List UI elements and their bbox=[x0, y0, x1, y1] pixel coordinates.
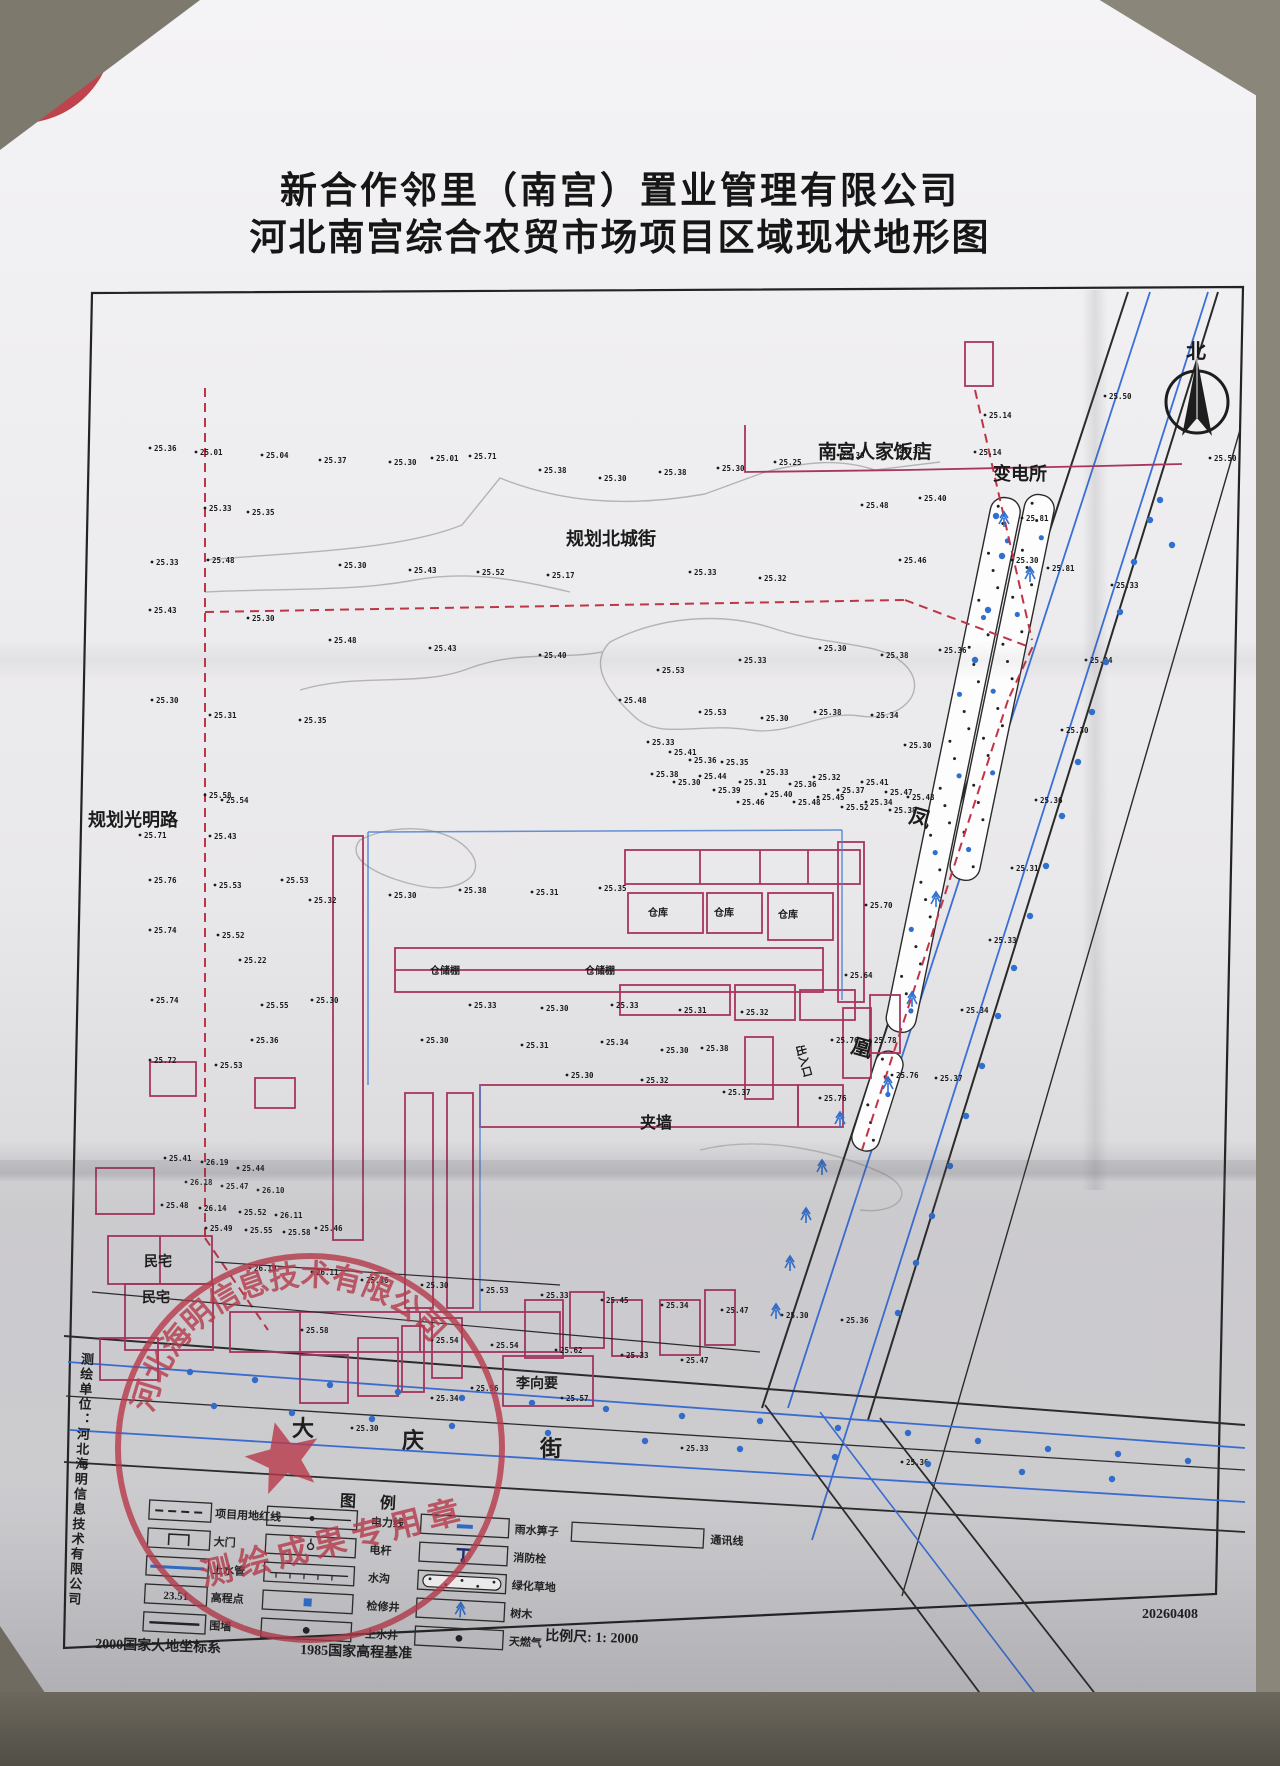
spot-elevation-dot bbox=[247, 511, 250, 514]
spot-elevation-value: 25.53 bbox=[704, 708, 727, 717]
spot-elevation-dot bbox=[841, 1319, 844, 1322]
utility-dot bbox=[1027, 913, 1033, 919]
greenbelt-dot bbox=[948, 740, 951, 743]
greenbelt-dot bbox=[972, 663, 975, 666]
spot-elevation-dot bbox=[837, 789, 840, 792]
utility-dot bbox=[1089, 709, 1095, 715]
spot-elevation-value: 26.11 bbox=[280, 1211, 303, 1220]
spot-elevation-value: 25.33 bbox=[686, 1444, 709, 1453]
legend-label: 消防栓 bbox=[513, 1550, 547, 1566]
spot-elevation-value: 25.33 bbox=[626, 1351, 649, 1360]
greenbelt-dot bbox=[997, 505, 1000, 508]
spot-elevation-value: 25.70 bbox=[870, 901, 893, 910]
spot-elevation-value: 25.50 bbox=[1109, 392, 1132, 401]
spot-elevation-value: 26.19 bbox=[206, 1158, 229, 1167]
spot-elevation-value: 25.76 bbox=[154, 876, 177, 885]
spot-elevation-dot bbox=[311, 999, 314, 1002]
spot-elevation-dot bbox=[865, 904, 868, 907]
spot-elevation-value: 25.30 bbox=[766, 714, 789, 723]
spot-elevation-value: 25.53 bbox=[220, 1061, 243, 1070]
greenbelt-dot bbox=[919, 881, 922, 884]
utility-dot bbox=[975, 1438, 981, 1444]
spot-elevation-value: 26.10 bbox=[262, 1186, 285, 1195]
spot-elevation-dot bbox=[329, 639, 332, 642]
spot-elevation-dot bbox=[601, 1299, 604, 1302]
spot-elevation-value: 25.71 bbox=[144, 831, 167, 840]
spot-elevation-dot bbox=[865, 801, 868, 804]
spot-elevation-value: 25.43 bbox=[214, 832, 237, 841]
spot-elevation-dot bbox=[161, 1204, 164, 1207]
north-label: 北 bbox=[1186, 340, 1206, 363]
spot-elevation-value: 25.30 bbox=[824, 644, 847, 653]
utility-dot bbox=[913, 1260, 919, 1266]
spot-elevation-dot bbox=[247, 617, 250, 620]
greenbelt-dot bbox=[905, 992, 908, 995]
spot-elevation-dot bbox=[459, 889, 462, 892]
spot-elevation-value: 25.43 bbox=[912, 793, 935, 802]
greenbelt-dot bbox=[866, 1103, 869, 1106]
spot-elevation-value: 25.52 bbox=[482, 568, 505, 577]
spot-elevation-dot bbox=[429, 647, 432, 650]
spot-elevation-dot bbox=[689, 759, 692, 762]
spot-elevation-dot bbox=[139, 834, 142, 837]
greenbelt-dot bbox=[1006, 660, 1009, 663]
spot-elevation-dot bbox=[1011, 559, 1014, 562]
spot-elevation-value: 25.57 bbox=[566, 1394, 589, 1403]
spot-elevation-dot bbox=[469, 1004, 472, 1007]
spot-elevation-value: 25.40 bbox=[924, 494, 947, 503]
legend-label: 通讯线 bbox=[710, 1532, 744, 1548]
spot-elevation-value: 25.30 bbox=[1016, 556, 1039, 565]
spot-elevation-value: 25.52 bbox=[222, 931, 245, 940]
spot-elevation-dot bbox=[299, 719, 302, 722]
spot-elevation-dot bbox=[351, 1427, 354, 1430]
spot-elevation-dot bbox=[275, 1214, 278, 1217]
spot-elevation-value: 25.34 bbox=[1090, 656, 1113, 665]
spot-elevation-value: 25.33 bbox=[209, 504, 232, 513]
legend-label: 树木 bbox=[510, 1606, 534, 1621]
spot-elevation-value: 25.47 bbox=[686, 1356, 709, 1365]
spot-elevation-value: 25.34 bbox=[606, 1038, 629, 1047]
spot-elevation-dot bbox=[541, 1007, 544, 1010]
spot-elevation-dot bbox=[207, 559, 210, 562]
spot-elevation-value: 25.04 bbox=[266, 451, 289, 460]
spot-elevation-value: 25.37 bbox=[324, 456, 347, 465]
planned-guangming-road-label: 规划光明路 bbox=[88, 809, 179, 830]
spot-elevation-value: 25.31 bbox=[744, 778, 767, 787]
spot-elevation-value: 25.81 bbox=[1026, 514, 1049, 523]
spot-elevation-dot bbox=[204, 507, 207, 510]
utility-dot bbox=[1185, 1458, 1191, 1464]
spot-elevation-value: 25.30 bbox=[344, 561, 367, 570]
spot-elevation-value: 25.33 bbox=[616, 1001, 639, 1010]
spot-elevation-value: 25.30 bbox=[678, 778, 701, 787]
spot-elevation-dot bbox=[215, 1064, 218, 1067]
tree-icon bbox=[801, 1208, 811, 1223]
spot-elevation-value: 25.32 bbox=[764, 574, 787, 583]
greenbelt-tree-dot bbox=[966, 847, 971, 852]
spot-elevation-dot bbox=[939, 649, 942, 652]
spot-elevation-dot bbox=[195, 451, 198, 454]
spot-elevation-dot bbox=[881, 654, 884, 657]
spot-elevation-dot bbox=[481, 1289, 484, 1292]
spot-elevation-dot bbox=[739, 781, 742, 784]
spot-elevation-dot bbox=[566, 1074, 569, 1077]
datum-plane-label: 2000国家大地坐标系 bbox=[95, 1635, 222, 1656]
greenbelt-dot bbox=[996, 586, 999, 589]
greenbelt-tree-dot bbox=[981, 615, 986, 620]
tree-icon bbox=[817, 1160, 827, 1175]
spot-elevation-dot bbox=[151, 699, 154, 702]
scale-label: 比例尺: 1: 2000 bbox=[545, 1627, 639, 1647]
spot-elevation-value: 25.62 bbox=[560, 1346, 583, 1355]
utility-dot bbox=[737, 1446, 743, 1452]
spot-elevation-value: 25.48 bbox=[798, 798, 821, 807]
spot-elevation-dot bbox=[761, 771, 764, 774]
spot-elevation-dot bbox=[699, 775, 702, 778]
topographic-map-canvas: 25.3625.0125.0425.3725.3025.0125.7125.38… bbox=[0, 0, 1280, 1766]
spot-elevation-dot bbox=[201, 1161, 204, 1164]
utility-dot bbox=[1043, 863, 1049, 869]
spot-elevation-value: 25.55 bbox=[250, 1226, 273, 1235]
legend-label: 绿化草地 bbox=[511, 1578, 556, 1594]
height-datum-label: 1985国家高程基准 bbox=[300, 1641, 413, 1662]
spot-elevation-dot bbox=[339, 564, 342, 567]
spot-elevation-dot bbox=[841, 806, 844, 809]
greenbelt-tree-dot bbox=[908, 1008, 913, 1013]
utility-dot bbox=[972, 657, 978, 663]
spot-elevation-value: 25.47 bbox=[726, 1306, 749, 1315]
utility-dot bbox=[995, 1013, 1001, 1019]
spot-elevation-value: 25.30 bbox=[666, 1046, 689, 1055]
legend-label: 高程点 bbox=[210, 1590, 244, 1606]
greenbelt-tree-dot bbox=[991, 689, 996, 694]
spot-elevation-value: 25.14 bbox=[989, 411, 1012, 420]
spot-elevation-value: 25.34 bbox=[966, 1006, 989, 1015]
spot-elevation-value: 25.38 bbox=[544, 466, 567, 475]
spot-elevation-value: 25.38 bbox=[819, 708, 842, 717]
spot-elevation-value: 25.38 bbox=[886, 651, 909, 660]
greenbelt-dot bbox=[1011, 677, 1014, 680]
spot-elevation-dot bbox=[431, 1397, 434, 1400]
utility-dot bbox=[905, 1430, 911, 1436]
spot-elevation-value: 25.54 bbox=[496, 1341, 519, 1350]
spot-elevation-value: 25.81 bbox=[1052, 564, 1075, 573]
spot-elevation-dot bbox=[659, 471, 662, 474]
spot-elevation-dot bbox=[713, 789, 716, 792]
utility-dot bbox=[459, 1395, 465, 1401]
spot-elevation-value: 25.76 bbox=[824, 1094, 847, 1103]
utility-dot bbox=[929, 1213, 935, 1219]
spot-elevation-dot bbox=[793, 801, 796, 804]
utility-dot bbox=[1147, 517, 1153, 523]
spot-elevation-value: 25.33 bbox=[994, 936, 1017, 945]
spot-elevation-dot bbox=[217, 934, 220, 937]
spot-elevation-dot bbox=[899, 559, 902, 562]
spot-elevation-value: 25.52 bbox=[846, 803, 869, 812]
spot-elevation-dot bbox=[723, 1091, 726, 1094]
greenbelt-dot bbox=[929, 915, 932, 918]
spot-elevation-dot bbox=[151, 561, 154, 564]
spot-elevation-value: 25.53 bbox=[486, 1286, 509, 1295]
corner-stamp bbox=[0, 0, 108, 118]
spot-elevation-value: 25.01 bbox=[436, 454, 459, 463]
spot-elevation-dot bbox=[661, 1049, 664, 1052]
spot-elevation-value: 25.31 bbox=[214, 711, 237, 720]
spot-elevation-dot bbox=[164, 1157, 167, 1160]
greenbelt-dot bbox=[972, 865, 975, 868]
greenbelt-dot bbox=[992, 569, 995, 572]
daqing-street-char: 庆 bbox=[402, 1428, 424, 1453]
spot-elevation-dot bbox=[1011, 867, 1014, 870]
spot-elevation-dot bbox=[149, 447, 152, 450]
spot-elevation-dot bbox=[421, 1039, 424, 1042]
greenbelt-dot bbox=[939, 787, 942, 790]
greenbelt-dot bbox=[1030, 583, 1033, 586]
spot-elevation-value: 25.30 bbox=[316, 996, 339, 1005]
spot-elevation-dot bbox=[491, 1344, 494, 1347]
spot-elevation-dot bbox=[701, 1047, 704, 1050]
spot-elevation-value: 25.17 bbox=[552, 571, 575, 580]
restaurant-label: 南宫人家饭店 bbox=[818, 440, 932, 463]
spot-elevation-dot bbox=[699, 711, 702, 714]
spot-elevation-value: 25.35 bbox=[604, 884, 627, 893]
greenbelt-tree-dot bbox=[909, 927, 914, 932]
spot-elevation-dot bbox=[717, 467, 720, 470]
spot-elevation-value: 25.36 bbox=[846, 1316, 869, 1325]
spot-elevation-dot bbox=[739, 659, 742, 662]
spot-elevation-value: 25.34 bbox=[666, 1301, 689, 1310]
greenbelt-dot bbox=[968, 646, 971, 649]
spot-elevation-value: 25.31 bbox=[536, 888, 559, 897]
north-compass-icon: 北 bbox=[1166, 340, 1228, 436]
spot-elevation-value: 25.30 bbox=[571, 1071, 594, 1080]
spot-elevation-dot bbox=[901, 1461, 904, 1464]
utility-dot bbox=[835, 1425, 841, 1431]
spot-elevation-value: 25.74 bbox=[156, 996, 179, 1005]
spot-elevation-value: 25.30 bbox=[786, 1311, 809, 1320]
spot-elevation-dot bbox=[469, 455, 472, 458]
spot-elevation-dot bbox=[261, 1004, 264, 1007]
greenbelt-dot bbox=[1031, 502, 1034, 505]
greenbelt-tree-dot bbox=[990, 770, 995, 775]
utility-dot bbox=[993, 513, 999, 519]
legend-label: 检修井 bbox=[366, 1598, 400, 1614]
legend-label: 水沟 bbox=[368, 1571, 391, 1586]
legend-symbol-box bbox=[147, 1528, 210, 1550]
spot-elevation-value: 25.48 bbox=[624, 696, 647, 705]
spot-elevation-dot bbox=[721, 1309, 724, 1312]
spot-elevation-value: 25.30 bbox=[252, 614, 275, 623]
utility-dot bbox=[1011, 965, 1017, 971]
entrance-label: 出入口 bbox=[793, 1043, 815, 1078]
spot-elevation-dot bbox=[389, 894, 392, 897]
spot-elevation-dot bbox=[204, 794, 207, 797]
spot-elevation-value: 25.35 bbox=[252, 508, 275, 517]
spot-elevation-dot bbox=[891, 1074, 894, 1077]
spot-elevation-dot bbox=[1021, 517, 1024, 520]
spot-elevation-value: 25.71 bbox=[474, 452, 497, 461]
spot-elevation-value: 25.48 bbox=[166, 1201, 189, 1210]
spot-elevation-value: 25.58 bbox=[288, 1228, 311, 1237]
spot-elevation-dot bbox=[209, 835, 212, 838]
spot-elevation-dot bbox=[539, 654, 542, 657]
spot-elevation-value: 25.45 bbox=[606, 1296, 629, 1305]
date-code: 20260408 bbox=[1142, 1607, 1198, 1622]
spot-elevation-dot bbox=[283, 1231, 286, 1234]
spot-elevation-dot bbox=[1209, 457, 1212, 460]
utility-dot bbox=[963, 1113, 969, 1119]
spot-elevation-value: 25.36 bbox=[944, 646, 967, 655]
spot-elevation-value: 25.37 bbox=[842, 786, 865, 795]
stamp-star-icon bbox=[238, 1413, 327, 1497]
utility-dot bbox=[395, 1389, 401, 1395]
spot-elevation-dot bbox=[531, 891, 534, 894]
greenbelt-tree-dot bbox=[957, 692, 962, 697]
utility-dot bbox=[1109, 1476, 1115, 1482]
spot-elevation-dot bbox=[1104, 395, 1107, 398]
utility-dot bbox=[985, 607, 991, 613]
utility-dot bbox=[1103, 659, 1109, 665]
spot-elevation-value: 25.32 bbox=[746, 1008, 769, 1017]
spot-elevation-value: 25.35 bbox=[726, 758, 749, 767]
spot-elevation-dot bbox=[205, 1227, 208, 1230]
legend-symbol-box bbox=[571, 1522, 704, 1548]
utility-dot bbox=[327, 1382, 333, 1388]
spot-elevation-dot bbox=[885, 791, 888, 794]
spot-elevation-value: 26.18 bbox=[190, 1178, 213, 1187]
spot-elevation-dot bbox=[301, 1329, 304, 1332]
spot-elevation-value: 25.30 bbox=[394, 458, 417, 467]
spot-elevation-dot bbox=[151, 999, 154, 1002]
spot-elevation-dot bbox=[149, 609, 152, 612]
utility-dot bbox=[187, 1369, 193, 1375]
spot-elevation-value: 25.30 bbox=[546, 1004, 569, 1013]
spot-elevation-dot bbox=[185, 1181, 188, 1184]
spot-elevation-dot bbox=[599, 887, 602, 890]
spot-elevation-dot bbox=[1085, 659, 1088, 662]
spot-elevation-dot bbox=[257, 1189, 260, 1192]
spot-elevation-value: 25.30 bbox=[1066, 726, 1089, 735]
utility-dot bbox=[449, 1423, 455, 1429]
spot-elevation-dot bbox=[661, 1304, 664, 1307]
greenbelt-dot bbox=[963, 710, 966, 713]
utility-dot bbox=[642, 1438, 648, 1444]
spot-elevation-value: 25.30 bbox=[426, 1281, 449, 1290]
spot-elevation-dot bbox=[251, 1039, 254, 1042]
utility-dot bbox=[1131, 559, 1137, 565]
utility-dot bbox=[679, 1413, 685, 1419]
greenbelt-dot bbox=[943, 804, 946, 807]
spot-elevation-dot bbox=[1111, 584, 1114, 587]
spot-elevation-value: 25.53 bbox=[219, 881, 242, 890]
spot-elevation-dot bbox=[1047, 567, 1050, 570]
utility-dot bbox=[1115, 1451, 1121, 1457]
legend-label: 项目用地红线 bbox=[215, 1506, 282, 1523]
spot-elevation-value: 25.31 bbox=[1016, 864, 1039, 873]
spot-elevation-dot bbox=[471, 1387, 474, 1390]
greenbelt-tree-dot bbox=[957, 773, 962, 778]
daqing-street-name: 大庆街 bbox=[292, 1416, 562, 1461]
spot-elevation-value: 25.46 bbox=[742, 798, 765, 807]
greenbelt-dot bbox=[981, 818, 984, 821]
spot-elevation-dot bbox=[641, 1079, 644, 1082]
spot-elevation-value: 25.33 bbox=[652, 738, 675, 747]
planned-north-street-label: 规划北城街 bbox=[566, 528, 656, 549]
spot-elevation-dot bbox=[774, 461, 777, 464]
spot-elevation-dot bbox=[721, 761, 724, 764]
greenbelt-dot bbox=[924, 898, 927, 901]
spot-elevation-value: 25.50 bbox=[1214, 454, 1237, 463]
spot-elevation-value: 25.30 bbox=[394, 891, 417, 900]
tree-icon bbox=[785, 1256, 795, 1271]
spot-elevation-value: 25.49 bbox=[210, 1224, 233, 1233]
utility-dot bbox=[979, 1063, 985, 1069]
spot-elevation-dot bbox=[315, 1227, 318, 1230]
spot-elevation-dot bbox=[974, 451, 977, 454]
utility-dot bbox=[1059, 813, 1065, 819]
spot-elevation-dot bbox=[149, 929, 152, 932]
greenbelt-dot bbox=[872, 1139, 875, 1142]
spot-elevation-dot bbox=[601, 1041, 604, 1044]
spot-elevation-dot bbox=[611, 1004, 614, 1007]
greenbelt-dot bbox=[1001, 724, 1004, 727]
spot-elevation-value: 25.33 bbox=[156, 558, 179, 567]
spot-elevation-dot bbox=[541, 1294, 544, 1297]
spot-elevation-value: 25.33 bbox=[546, 1291, 569, 1300]
utility-dot bbox=[1117, 609, 1123, 615]
greenbelt-dot bbox=[977, 680, 980, 683]
utility-dot bbox=[1075, 759, 1081, 765]
spot-elevation-dot bbox=[759, 577, 762, 580]
spot-elevation-dot bbox=[819, 1097, 822, 1100]
utility-dot bbox=[211, 1403, 217, 1409]
spot-elevation-dot bbox=[1061, 729, 1064, 732]
spot-elevation-value: 25.37 bbox=[728, 1088, 751, 1097]
greenbelt-tree-dot bbox=[1039, 535, 1044, 540]
utility-dot bbox=[1157, 497, 1163, 503]
spot-elevation-dot bbox=[814, 711, 817, 714]
spot-elevation-value: 25.40 bbox=[544, 651, 567, 660]
spot-elevation-dot bbox=[261, 454, 264, 457]
blue-boundary bbox=[368, 830, 842, 1312]
spot-elevation-dot bbox=[237, 1167, 240, 1170]
spot-elevation-dot bbox=[673, 781, 676, 784]
spot-elevation-value: 25.33 bbox=[766, 768, 789, 777]
warehouse-label-2: 仓库 bbox=[713, 906, 734, 919]
spot-elevation-value: 25.48 bbox=[866, 501, 889, 510]
utility-dot bbox=[252, 1377, 258, 1383]
spot-elevation-dot bbox=[239, 959, 242, 962]
spot-elevation-value: 25.54 bbox=[436, 1336, 459, 1345]
legend-label: 大门 bbox=[213, 1534, 236, 1549]
spot-elevation-dot bbox=[149, 1059, 152, 1062]
tree-icon bbox=[771, 1304, 781, 1319]
spot-elevation-dot bbox=[309, 899, 312, 902]
spot-elevation-value: 26.14 bbox=[204, 1204, 227, 1213]
spot-elevation-dot bbox=[621, 1354, 624, 1357]
spot-elevation-value: 25.38 bbox=[706, 1044, 729, 1053]
greenbelt-dot bbox=[987, 754, 990, 757]
spot-elevation-value: 25.30 bbox=[909, 741, 932, 750]
utility-dot bbox=[1045, 1446, 1051, 1452]
spot-elevation-value: 25.25 bbox=[779, 458, 802, 467]
spot-elevation-value: 25.33 bbox=[1116, 581, 1139, 590]
greenbelt-dot bbox=[977, 801, 980, 804]
greenbelt-dot bbox=[953, 757, 956, 760]
spot-elevation-dot bbox=[861, 504, 864, 507]
spot-elevation-dot bbox=[221, 799, 224, 802]
